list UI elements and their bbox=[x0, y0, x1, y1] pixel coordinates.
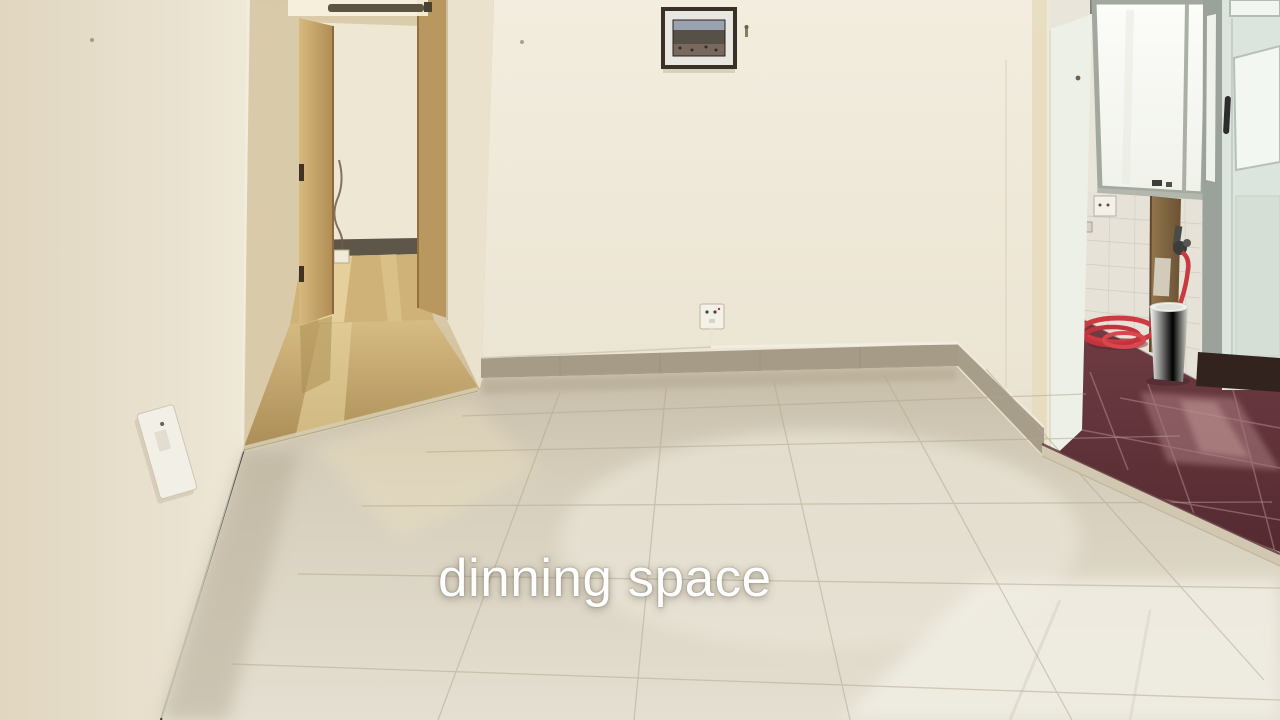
power-socket bbox=[700, 304, 724, 329]
hallway-socket bbox=[334, 250, 349, 263]
wall-mark bbox=[520, 40, 524, 44]
kitchen-door bbox=[1222, 0, 1280, 390]
door-hinge bbox=[299, 164, 304, 181]
window-latch bbox=[1152, 180, 1162, 186]
open-door bbox=[299, 18, 333, 325]
door-jamb bbox=[418, 0, 447, 318]
door-hinge bbox=[299, 266, 304, 282]
hallway-doorway bbox=[242, 0, 494, 460]
photo-dining-space: dinning space bbox=[0, 0, 1280, 720]
plank-label bbox=[1153, 258, 1171, 297]
photo-scene bbox=[0, 0, 1280, 720]
door-transom bbox=[1230, 0, 1280, 16]
wall-mark bbox=[1076, 76, 1081, 81]
kitchen-socket bbox=[1094, 196, 1116, 216]
kitchen-dark-skirting bbox=[1196, 352, 1280, 392]
framed-picture bbox=[661, 7, 737, 73]
door-glass-pane bbox=[1234, 46, 1280, 170]
wall-nail bbox=[90, 38, 94, 42]
tube-light bbox=[288, 0, 432, 16]
picture-nail bbox=[745, 25, 749, 37]
kitchen-window bbox=[1094, 2, 1208, 194]
wall-conduit bbox=[711, 329, 712, 347]
